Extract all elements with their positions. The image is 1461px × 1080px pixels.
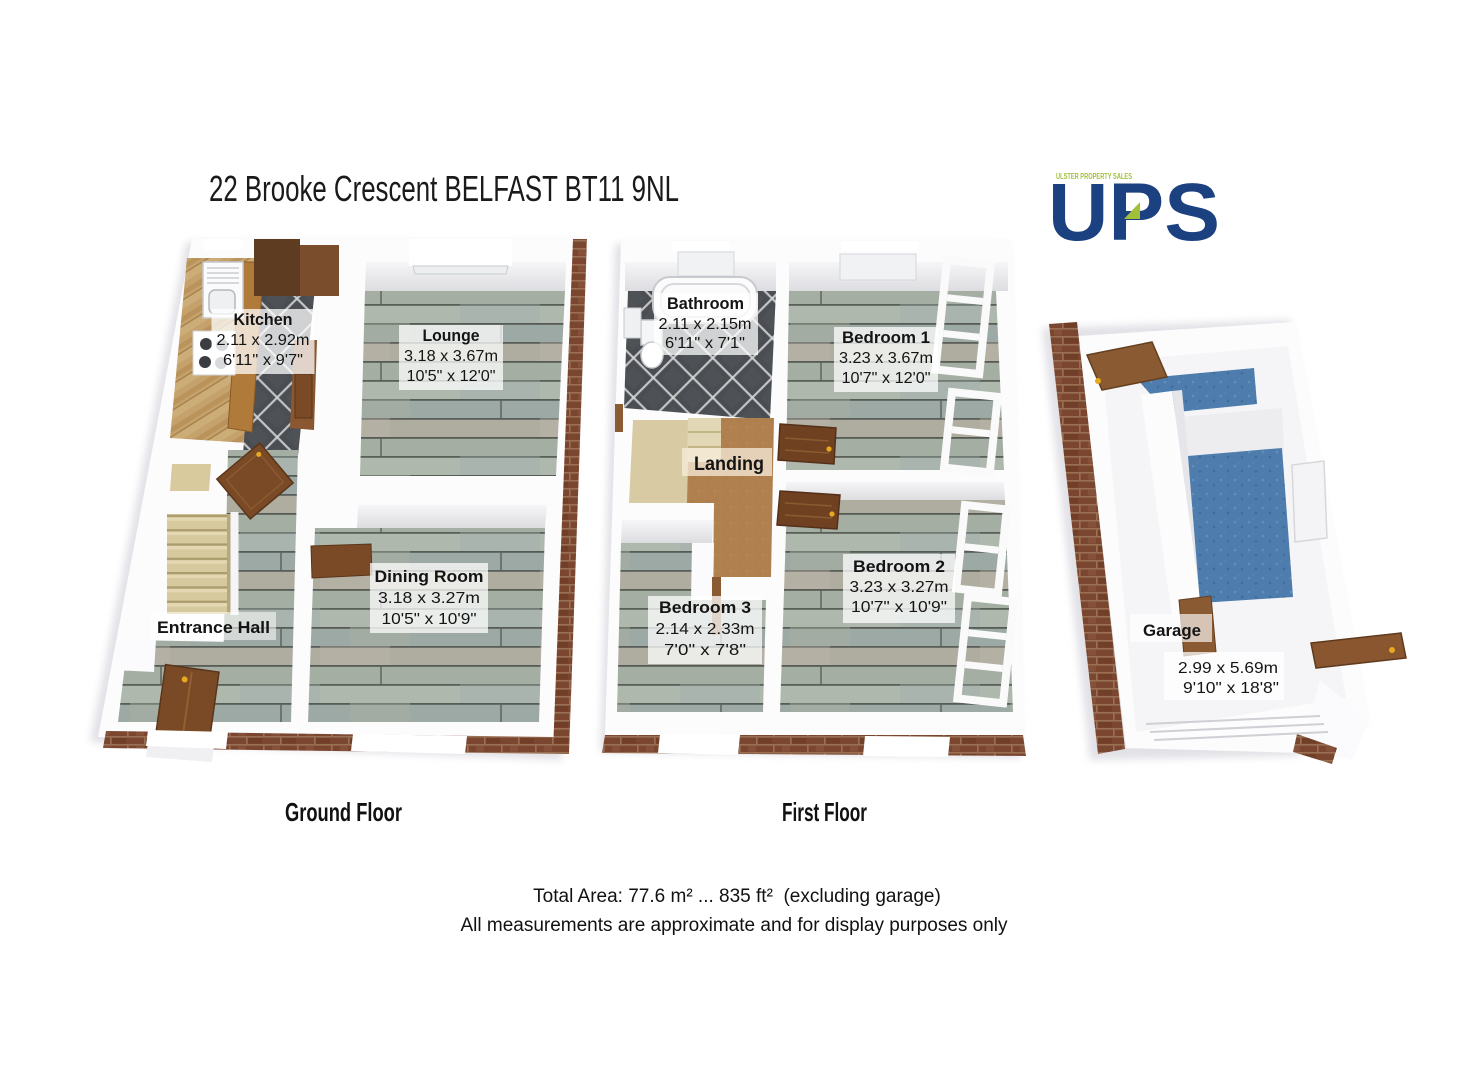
svg-text:10'5" x 12'0": 10'5" x 12'0" [407,368,496,385]
svg-text:10'7" x 10'9": 10'7" x 10'9" [851,599,947,616]
svg-text:Dining Room: Dining Room [375,567,484,586]
svg-text:6'11" x 7'1": 6'11" x 7'1" [665,335,745,352]
svg-text:9'10" x 18'8": 9'10" x 18'8" [1183,680,1279,697]
svg-text:All measurements are approxima: All measurements are approximate and for… [460,915,1008,936]
svg-text:First Floor: First Floor [782,797,867,827]
svg-text:22 Brooke Crescent BELFAST BT1: 22 Brooke Crescent BELFAST BT11 9NL [209,168,679,209]
svg-text:Bedroom 2: Bedroom 2 [853,557,945,576]
svg-text:3.23 x 3.67m: 3.23 x 3.67m [839,350,933,367]
svg-text:Bedroom 3: Bedroom 3 [659,598,751,617]
svg-text:Total Area: 77.6 m² ... 835 ft: Total Area: 77.6 m² ... 835 ft² (excludi… [533,886,941,907]
svg-text:Landing: Landing [694,454,764,475]
svg-text:Ground Floor: Ground Floor [285,797,402,827]
svg-text:6'11" x 9'7": 6'11" x 9'7" [223,352,303,369]
svg-text:Bedroom 1: Bedroom 1 [842,328,930,347]
svg-text:Garage: Garage [1143,621,1201,640]
svg-text:Bathroom: Bathroom [667,294,744,313]
svg-text:10'7" x 12'0": 10'7" x 12'0" [842,370,931,387]
svg-text:2.11 x 2.92m: 2.11 x 2.92m [217,332,310,349]
svg-text:Lounge: Lounge [423,326,480,345]
svg-text:2.11 x 2.15m: 2.11 x 2.15m [659,316,752,333]
svg-text:3.18 x 3.67m: 3.18 x 3.67m [404,348,498,365]
svg-text:7'0" x 7'8": 7'0" x 7'8" [664,642,746,659]
svg-text:3.18 x 3.27m: 3.18 x 3.27m [378,590,480,607]
svg-text:10'5" x 10'9": 10'5" x 10'9" [382,611,477,628]
svg-text:3.23 x 3.27m: 3.23 x 3.27m [850,579,949,596]
svg-text:Kitchen: Kitchen [234,310,293,329]
svg-text:Entrance Hall: Entrance Hall [157,618,270,637]
svg-text:2.99 x 5.69m: 2.99 x 5.69m [1178,660,1278,677]
svg-text:2.14 x 2.33m: 2.14 x 2.33m [656,621,755,638]
